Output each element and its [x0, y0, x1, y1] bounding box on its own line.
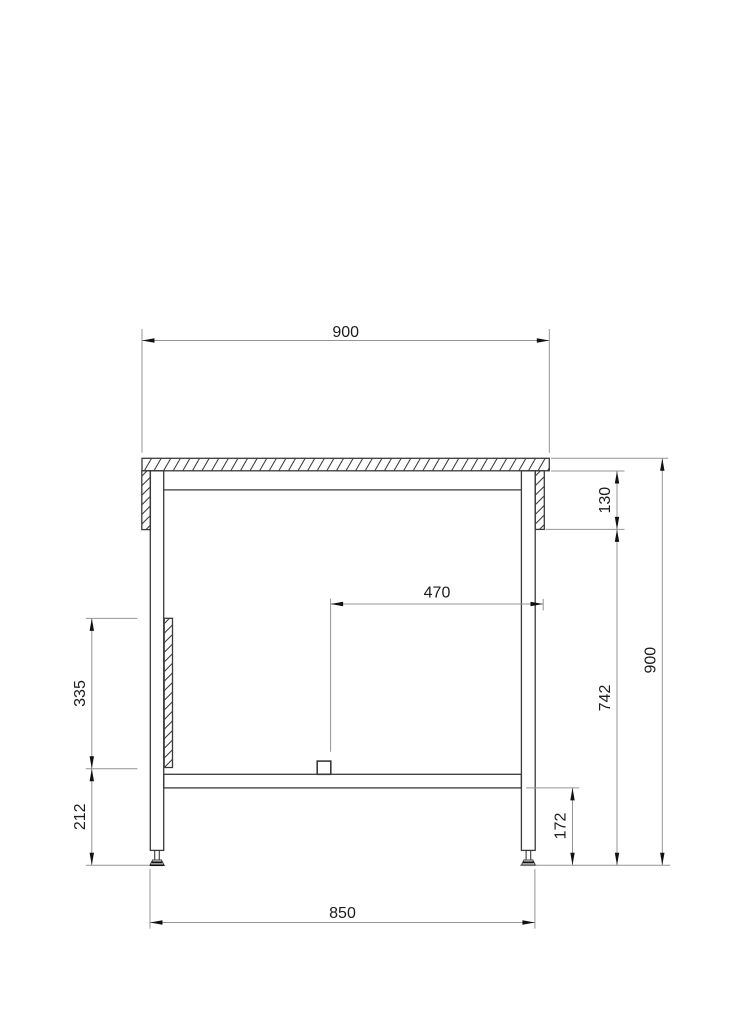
svg-text:335: 335 [72, 680, 89, 707]
svg-text:900: 900 [332, 324, 359, 341]
svg-text:850: 850 [329, 905, 356, 922]
svg-text:470: 470 [424, 585, 451, 602]
svg-text:742: 742 [597, 685, 614, 712]
svg-text:900: 900 [643, 647, 660, 674]
svg-text:130: 130 [597, 487, 614, 514]
svg-text:212: 212 [72, 803, 89, 830]
svg-text:172: 172 [553, 813, 570, 840]
